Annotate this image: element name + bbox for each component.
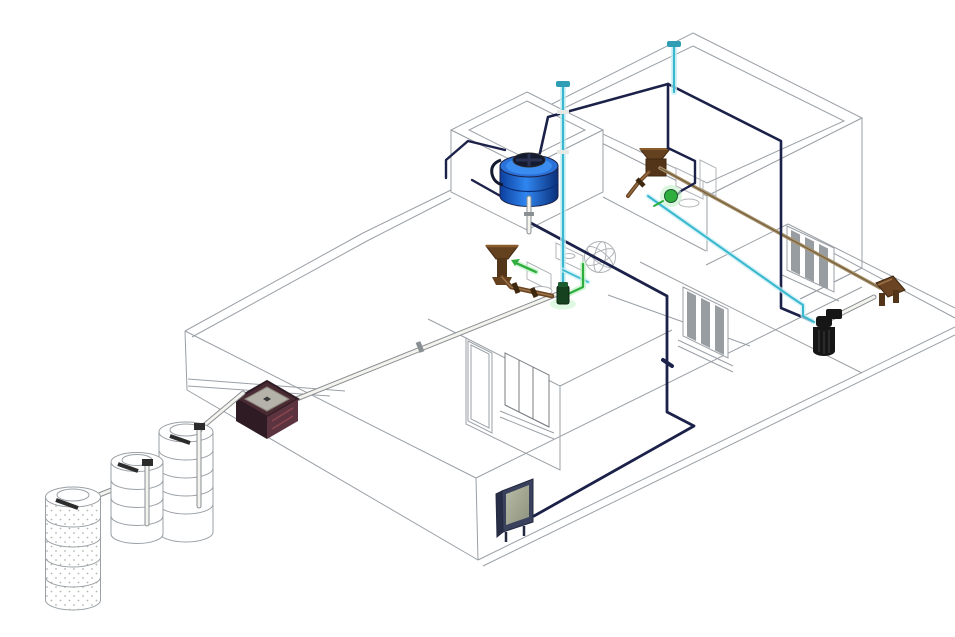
isometric-plumbing-diagram xyxy=(0,0,955,637)
diagram-canvas xyxy=(0,0,955,637)
septic-tank-2 xyxy=(111,453,163,544)
septic-tank-1 xyxy=(159,422,213,542)
septic-system xyxy=(46,393,244,610)
leach-cylinder xyxy=(46,487,101,610)
vent-cap-1 xyxy=(556,81,570,87)
door-front xyxy=(468,341,492,433)
vent-cap-2 xyxy=(667,41,681,47)
wall-heater-panel xyxy=(496,479,533,542)
green-ball-valve xyxy=(665,190,678,203)
